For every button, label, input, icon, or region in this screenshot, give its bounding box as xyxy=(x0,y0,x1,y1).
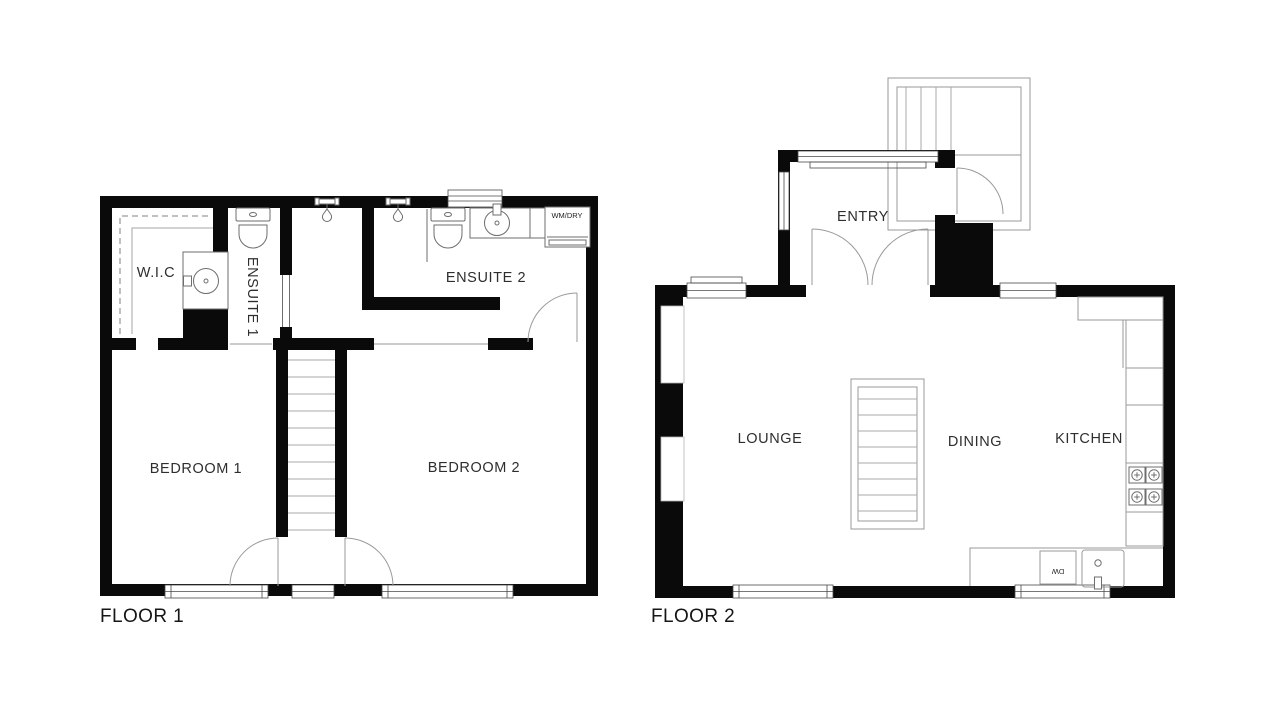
floor2-windows xyxy=(687,151,1110,598)
kitchen-upper-cabinet xyxy=(1078,297,1163,320)
window-lounge-top xyxy=(687,277,746,298)
floor2-stairwell xyxy=(851,379,924,529)
washer-dryer-label: WM/DRY xyxy=(551,211,582,220)
window-entry-top xyxy=(798,151,938,168)
room-label-bedroom2: BEDROOM 2 xyxy=(428,460,520,476)
room-label-ensuite1: ENSUITE 1 xyxy=(244,257,260,337)
counter-bottom xyxy=(970,548,1163,586)
window-bedroom1 xyxy=(165,585,268,598)
floor2-walls xyxy=(655,150,1175,598)
room-label-dining: DINING xyxy=(948,434,1002,450)
floorplan-page: W.I.C ENSUITE 1 ENSUITE 2 BEDROOM 1 BEDR… xyxy=(0,0,1280,720)
window-bedroom2 xyxy=(382,585,513,598)
window-entry-left xyxy=(779,172,789,230)
counter-section xyxy=(1126,368,1163,405)
ensuite1-sink-icon xyxy=(183,252,228,309)
window-dining-top xyxy=(1000,283,1056,298)
window-hallway xyxy=(292,585,334,598)
stove-icon xyxy=(1126,463,1163,512)
kitchen-sink-icon xyxy=(1082,550,1124,589)
room-label-entry: ENTRY xyxy=(837,209,889,225)
floor1-stairs xyxy=(288,360,335,530)
room-label-kitchen: KITCHEN xyxy=(1055,431,1123,447)
window-lounge-bottom xyxy=(733,585,833,598)
door-bedroom2 xyxy=(345,538,393,586)
room-label-ensuite2: ENSUITE 2 xyxy=(446,270,526,286)
entry-french-doors xyxy=(812,229,928,285)
room-label-lounge: LOUNGE xyxy=(738,431,803,447)
floor1-title: FLOOR 1 xyxy=(100,606,184,627)
ensuite2-vanity-icon xyxy=(470,204,545,238)
dishwasher-label: DW xyxy=(1051,567,1064,576)
shower-head-icon xyxy=(315,198,339,221)
floor2-plan: ENTRY LOUNGE DINING KITCHEN DW FLOOR 2 xyxy=(651,78,1175,627)
floor2-title: FLOOR 2 xyxy=(651,606,735,627)
door-ensuite2 xyxy=(528,293,577,342)
counter-section xyxy=(1126,512,1163,546)
room-label-wic: W.I.C xyxy=(137,265,175,281)
fridge-icon xyxy=(1123,320,1163,368)
floor1-walls xyxy=(100,196,598,596)
toilet-icon xyxy=(431,208,465,248)
toilet-icon xyxy=(236,208,270,248)
room-label-bedroom1: BEDROOM 1 xyxy=(150,461,242,477)
floorplan-canvas: W.I.C ENSUITE 1 ENSUITE 2 BEDROOM 1 BEDR… xyxy=(0,0,1280,720)
floor1-plan: W.I.C ENSUITE 1 ENSUITE 2 BEDROOM 1 BEDR… xyxy=(100,190,598,627)
floor2-labels: ENTRY LOUNGE DINING KITCHEN DW FLOOR 2 xyxy=(651,209,1123,627)
shower-head-icon xyxy=(386,198,410,221)
entry-side-door xyxy=(935,168,1003,215)
door-bedroom1 xyxy=(230,538,278,586)
counter-section xyxy=(1126,405,1163,463)
